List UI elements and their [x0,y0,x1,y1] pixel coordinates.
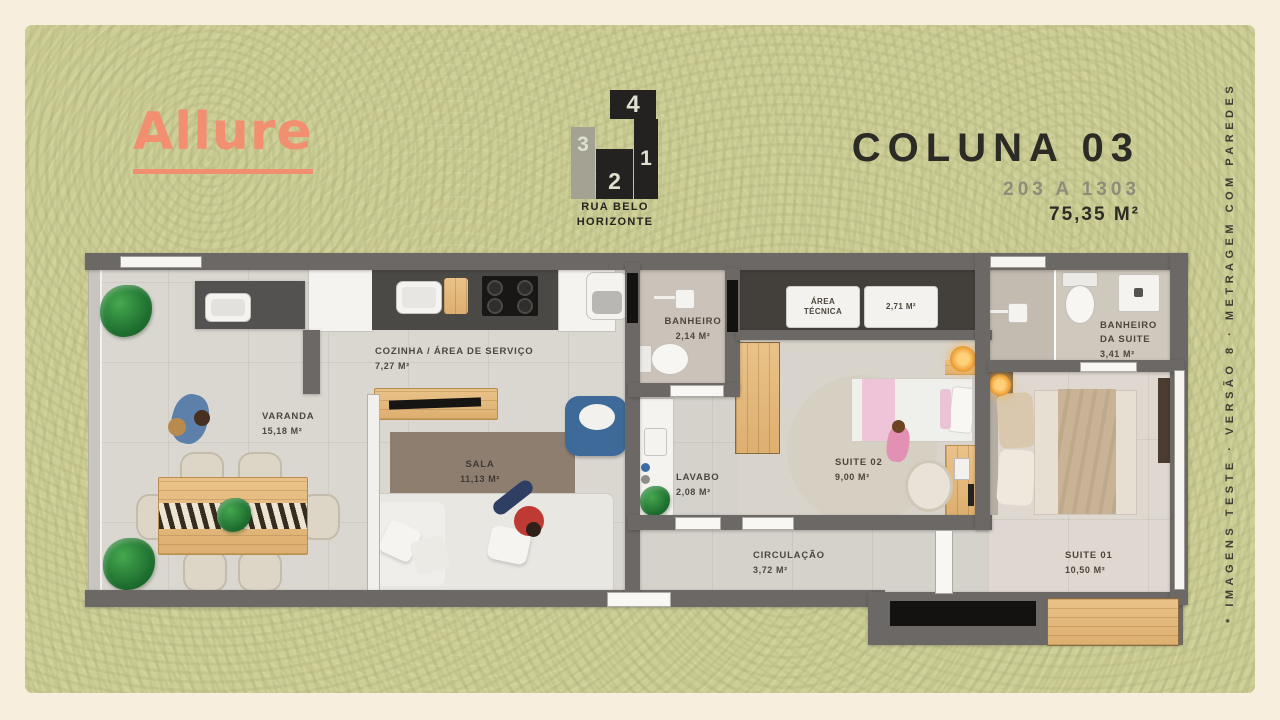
door-banheiro-suite [1080,362,1137,372]
pillow-pink [940,389,951,429]
building-block-1: 1 [634,119,658,199]
room-area: 3,72 M² [753,564,825,577]
room-name: BANHEIRO DA SUITE [1100,320,1157,345]
building-block-1-label: 1 [640,147,652,171]
gourmet-sink [205,293,251,322]
wall-stub-varanda [303,330,320,394]
building-block-3-label: 3 [577,133,589,157]
service-duct [890,601,1036,626]
cutting-board [444,278,468,314]
brand-logo: Allure [133,106,313,174]
dryer-machine: 2,71 M² [864,286,938,328]
floor-plan: ÁREA TÉCNICA 2,71 M² [70,253,1192,647]
sink-cabinet-suite [1118,274,1160,312]
door-suite02 [742,517,794,530]
person-head [194,410,210,426]
kitchen-cabinet-left [308,266,374,332]
room-area: 2,08 M² [676,486,720,499]
room-name: SUITE 02 [835,457,883,468]
shower-arm-suite [990,310,1008,313]
window-suite01 [1174,370,1185,590]
washer-machine: ÁREA TÉCNICA [786,286,860,328]
toilet-suite [1062,272,1096,324]
lavabo-sink [644,428,667,456]
room-name: SALA [465,459,494,470]
room-area: 11,13 M² [445,473,515,486]
room-area: 2,14 M² [648,330,738,343]
label-cozinha: COZINHA / ÁREA DE SERVIÇO 7,27 M² [375,345,533,373]
building-block-2-label: 2 [608,168,621,195]
door-lavabo [675,517,721,530]
kitchen-sink [396,281,442,314]
desk-monitor [968,484,974,506]
room-area: 9,00 M² [835,471,883,484]
room-name: VARANDA [262,411,314,422]
room-name: COZINHA / ÁREA DE SERVIÇO [375,346,533,357]
column-title: COLUNA 03 [852,126,1140,171]
bed-suite02 [851,378,980,442]
person-head [526,522,541,537]
person-sitting [490,480,550,546]
label-banheiro: BANHEIRO 2,14 M² [648,315,738,343]
dining-table [158,477,308,555]
label-banheiro-suite: BANHEIRO DA SUITE 3,41 M² [1100,319,1172,361]
faucet [1134,288,1143,297]
armchair [565,396,627,456]
wardrobe-suite02 [735,342,780,454]
basket [168,418,186,436]
child-head [892,420,905,433]
building-block-4: 4 [610,90,656,119]
door-banheiro [670,385,724,397]
total-area: 75,35 M² [852,204,1140,226]
street-line1: RUA BELO [554,200,676,215]
unit-range: 203 A 1303 [852,179,1140,201]
window-banheiro-suite [990,256,1046,268]
dining-chair [238,550,282,592]
desk-chair-suite02 [905,460,953,512]
side-note: * IMAGENS TESTE · VERSÃO 8 · METRAGEM CO… [1218,60,1242,645]
tv [389,397,481,409]
pillow [996,449,1036,506]
label-suite01: SUITE 01 10,50 M² [1065,549,1113,577]
shower-arm [654,296,675,299]
stove [482,276,538,316]
room-name: LAVABO [676,472,720,483]
area-tecnica-area: 2,71 M² [886,302,916,312]
person-standing [168,388,220,453]
room-area: 10,50 M² [1065,564,1113,577]
lavabo-cup [641,463,650,472]
tv-console [374,388,498,420]
building-block-4-label: 4 [626,91,639,119]
label-varanda: VARANDA 15,18 M² [262,410,314,438]
shower-head-banheiro [675,289,695,309]
door-suite01 [935,530,953,594]
laundry-tank [586,272,628,320]
shower-head-suite [1008,303,1028,323]
street-name: RUA BELO HORIZONTE [554,200,676,231]
toilet-banheiro [637,343,687,373]
lamp-suite02 [950,346,976,372]
room-name: CIRCULAÇÃO [753,550,825,561]
lamp-suite01 [989,374,1011,396]
room-area: 15,18 M² [262,425,314,438]
glass-partition [1054,268,1056,364]
label-suite02: SUITE 02 9,00 M² [835,456,883,484]
area-tecnica-name: ÁREA TÉCNICA [794,297,852,318]
bed-suite01 [988,388,1135,515]
glass-door-varanda-sala [367,394,380,594]
building-block-2: 2 [596,149,633,199]
label-circulacao: CIRCULAÇÃO 3,72 M² [753,549,825,577]
street-line2: HORIZONTE [554,215,676,230]
room-name: SUITE 01 [1065,550,1113,561]
door-entry [607,592,671,607]
window-varanda [120,256,202,268]
wall-under-area-tecnica [736,330,992,340]
wall-bottom [85,590,885,607]
label-sala: SALA 11,13 M² [445,458,515,486]
pillow [996,392,1036,449]
building-block-3: 3 [571,127,595,199]
unit-header: COLUNA 03 203 A 1303 75,35 M² [852,126,1140,226]
label-lavabo: LAVABO 2,08 M² [676,471,720,499]
room-area: 3,41 M² [1100,348,1172,361]
dining-chair [183,550,227,592]
blanket [1058,389,1116,514]
child-figure [885,420,913,466]
wardrobe-suite01 [1047,598,1179,646]
desk-laptop [954,458,970,480]
niche-banheiro-left [627,273,638,323]
lavabo-cup [641,475,650,484]
wall-suite02-suite01 [975,253,990,530]
room-name: BANHEIRO [664,316,721,327]
room-area: 7,27 M² [375,360,533,373]
